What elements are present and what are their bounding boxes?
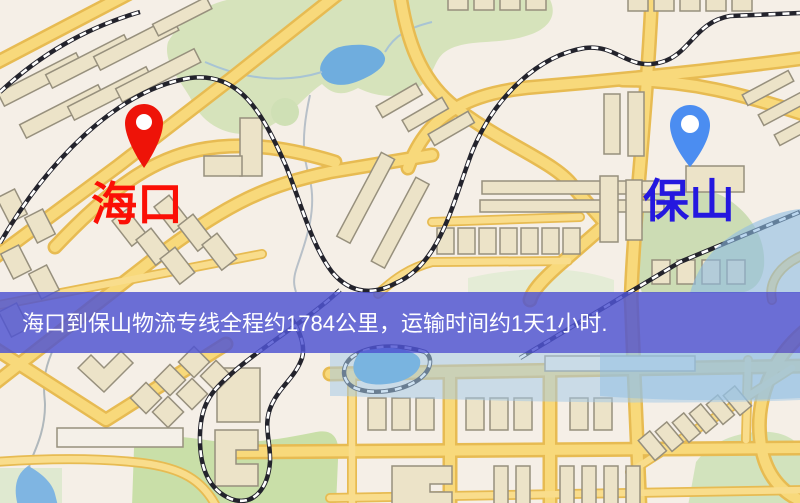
map-view: 海口到保山物流专线全程约1784公里，运输时间约1天1小时. 海口 保山 xyxy=(0,0,800,503)
route-info-banner: 海口到保山物流专线全程约1784公里，运输时间约1天1小时. xyxy=(0,292,800,353)
destination-pin-dot xyxy=(681,115,699,133)
map-canvas[interactable]: 海口到保山物流专线全程约1784公里，运输时间约1天1小时. 海口 保山 xyxy=(0,0,800,503)
origin-label: 海口 xyxy=(91,178,183,230)
origin-pin-dot xyxy=(136,114,152,130)
destination-label: 保山 xyxy=(643,175,735,227)
banner-text: 海口到保山物流专线全程约1784公里，运输时间约1天1小时. xyxy=(22,311,608,336)
